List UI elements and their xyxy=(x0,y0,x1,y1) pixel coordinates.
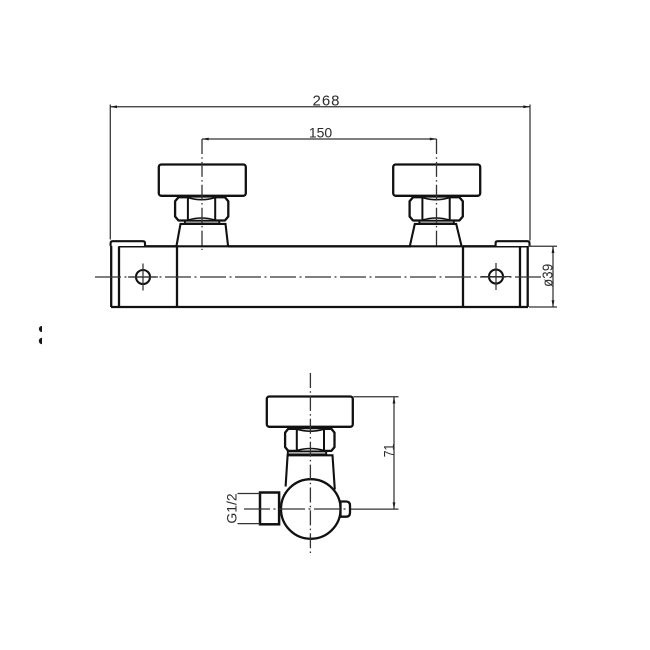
svg-text:G1/2: G1/2 xyxy=(224,493,240,524)
svg-text:268: 268 xyxy=(312,93,340,110)
svg-text:71: 71 xyxy=(381,444,397,457)
svg-text:ø39: ø39 xyxy=(539,264,556,287)
svg-text:150: 150 xyxy=(309,125,333,141)
